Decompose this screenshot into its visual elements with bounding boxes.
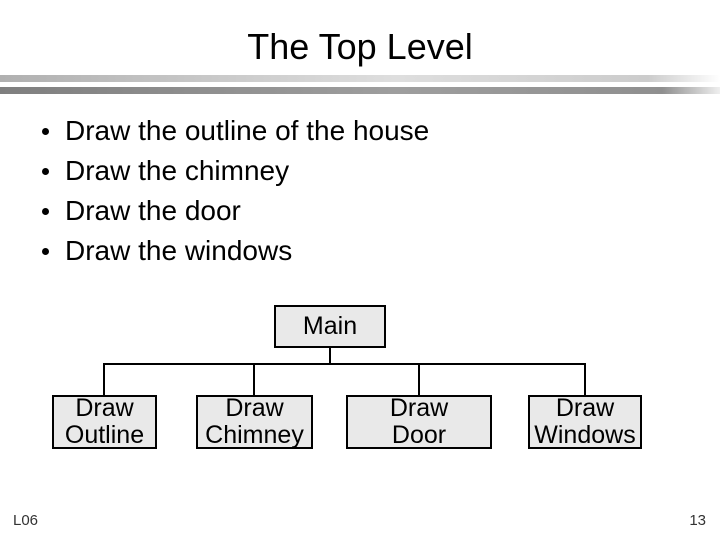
bullet-dot [42, 208, 49, 215]
child-box-draw-chimney: Draw Chimney [196, 395, 313, 449]
bullet-dot [42, 168, 49, 175]
bullet-text: Draw the outline of the house [65, 111, 429, 151]
bullet-dot [42, 248, 49, 255]
bullet-text: Draw the windows [65, 231, 292, 271]
child-box-draw-door: Draw Door [346, 395, 492, 449]
page-number: 13 [689, 513, 706, 529]
bullet-item: Draw the outline of the house [40, 111, 660, 151]
slide-title: The Top Level [0, 28, 720, 66]
bullet-text: Draw the door [65, 191, 241, 231]
lecture-label: L06 [13, 513, 38, 529]
connector-drop-door [418, 363, 420, 395]
child-box-draw-outline: Draw Outline [52, 395, 157, 449]
bullet-list: Draw the outline of the house Draw the c… [40, 111, 660, 271]
title-divider-bottom [0, 87, 720, 94]
main-box: Main [274, 305, 386, 348]
connector-drop-chimney [253, 363, 255, 395]
child-box-draw-windows: Draw Windows [528, 395, 642, 449]
bullet-dot [42, 128, 49, 135]
bullet-item: Draw the windows [40, 231, 660, 271]
connector-drop-outline [103, 363, 105, 395]
bullet-text: Draw the chimney [65, 151, 289, 191]
bullet-item: Draw the chimney [40, 151, 660, 191]
connector-drop-windows [584, 363, 586, 395]
connector-rail [103, 363, 586, 365]
slide: The Top Level Draw the outline of the ho… [0, 0, 720, 540]
bullet-item: Draw the door [40, 191, 660, 231]
title-divider-top [0, 75, 720, 82]
